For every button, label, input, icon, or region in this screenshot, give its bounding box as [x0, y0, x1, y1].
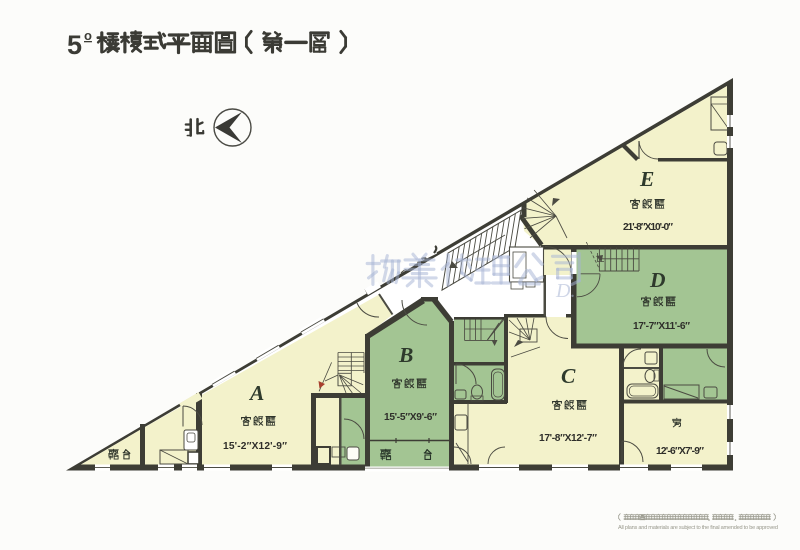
- svg-text:17'-7″X11'-6″: 17'-7″X11'-6″: [633, 321, 690, 332]
- svg-text:D.: D.: [555, 280, 575, 302]
- svg-text:17'-8″X12'-7″: 17'-8″X12'-7″: [539, 433, 597, 444]
- svg-text:A: A: [248, 381, 264, 405]
- svg-text:15'-5″X9'-6″: 15'-5″X9'-6″: [384, 412, 437, 423]
- svg-text:All plans and materials are su: All plans and materials are subject to t…: [618, 525, 778, 531]
- svg-text:E: E: [639, 167, 654, 191]
- svg-text:5: 5: [67, 30, 82, 60]
- svg-text:C: C: [561, 364, 576, 388]
- svg-text:D: D: [649, 268, 666, 292]
- svg-text:o: o: [84, 28, 92, 43]
- svg-text:21'-8″X10'-0″: 21'-8″X10'-0″: [623, 222, 673, 233]
- svg-text:12'-6″X7'-9″: 12'-6″X7'-9″: [656, 446, 704, 457]
- svg-text:B: B: [398, 343, 413, 367]
- svg-text:15'-2″X12'-9″: 15'-2″X12'-9″: [223, 441, 287, 452]
